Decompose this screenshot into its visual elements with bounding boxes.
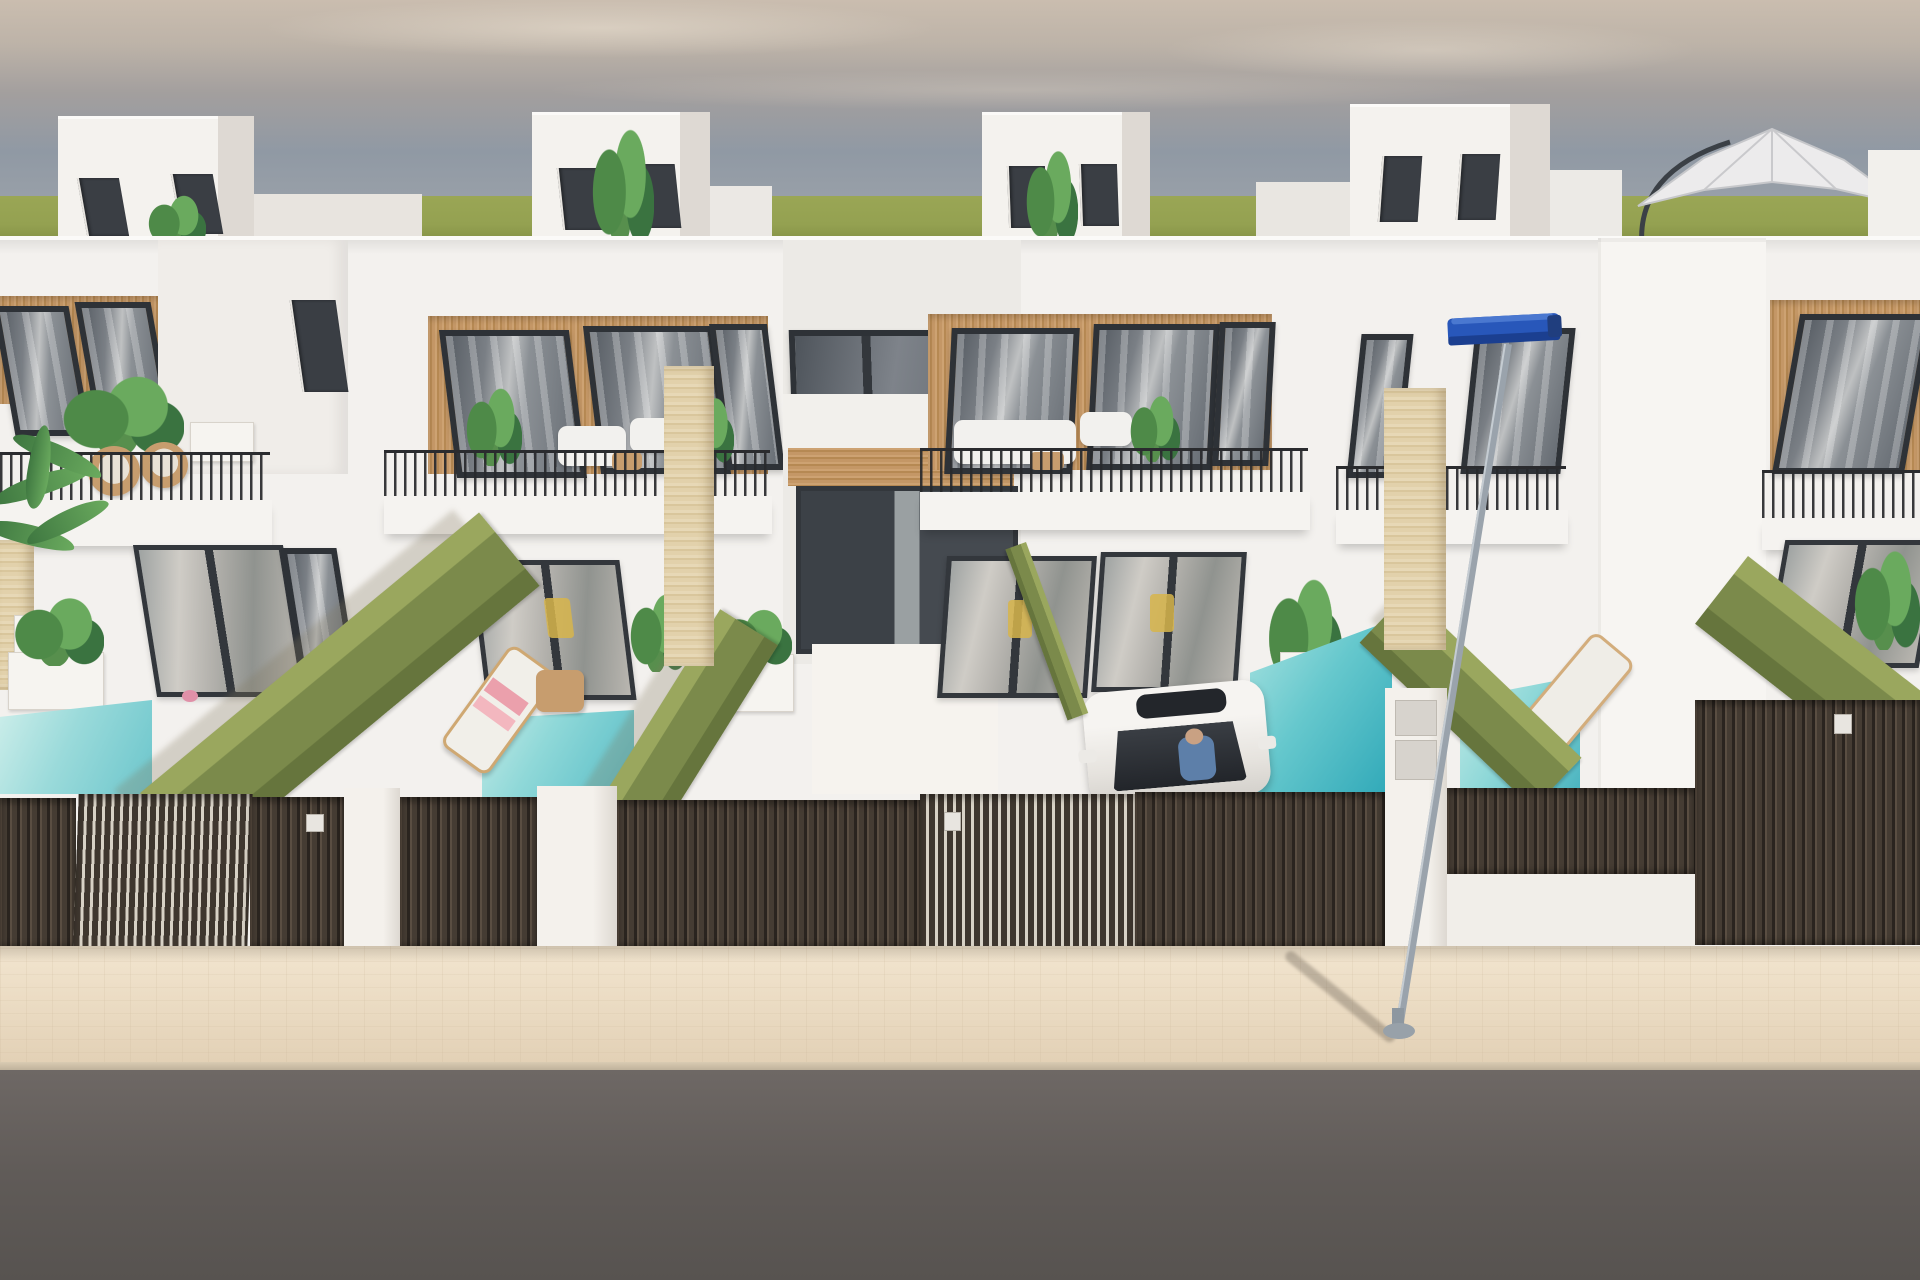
architectural-render — [0, 0, 1920, 1280]
lamp-head — [1447, 313, 1562, 346]
lamp-base-plate — [1383, 1023, 1415, 1039]
street-lamp — [0, 0, 1920, 1280]
lamp-pole — [1399, 344, 1508, 1028]
